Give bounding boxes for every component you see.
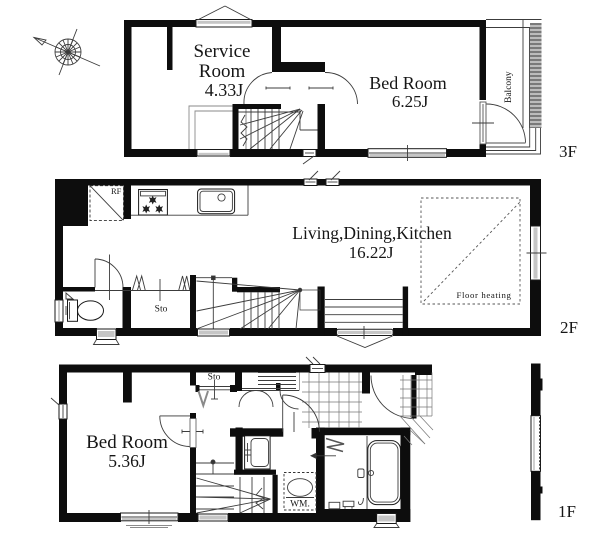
svg-text:Service: Service (194, 41, 251, 62)
svg-text:Bed Room: Bed Room (86, 432, 168, 453)
svg-text:3F: 3F (559, 142, 577, 161)
svg-text:Bed Room: Bed Room (369, 73, 447, 93)
svg-text:4.33J: 4.33J (205, 80, 244, 100)
svg-text:1F: 1F (558, 502, 576, 521)
svg-text:5.36J: 5.36J (108, 451, 146, 471)
svg-text:2F: 2F (560, 318, 578, 337)
svg-text:WM.: WM. (290, 500, 310, 510)
svg-text:Room: Room (199, 61, 246, 82)
svg-text:16.22J: 16.22J (349, 243, 394, 262)
svg-text:6.25J: 6.25J (392, 92, 429, 111)
svg-text:Living,Dining,Kitchen: Living,Dining,Kitchen (292, 223, 452, 243)
svg-text:Balcony: Balcony (504, 71, 514, 103)
svg-text:Floor heating: Floor heating (457, 290, 512, 300)
svg-text:Sto: Sto (155, 305, 168, 315)
svg-text:RF: RF (111, 186, 122, 196)
